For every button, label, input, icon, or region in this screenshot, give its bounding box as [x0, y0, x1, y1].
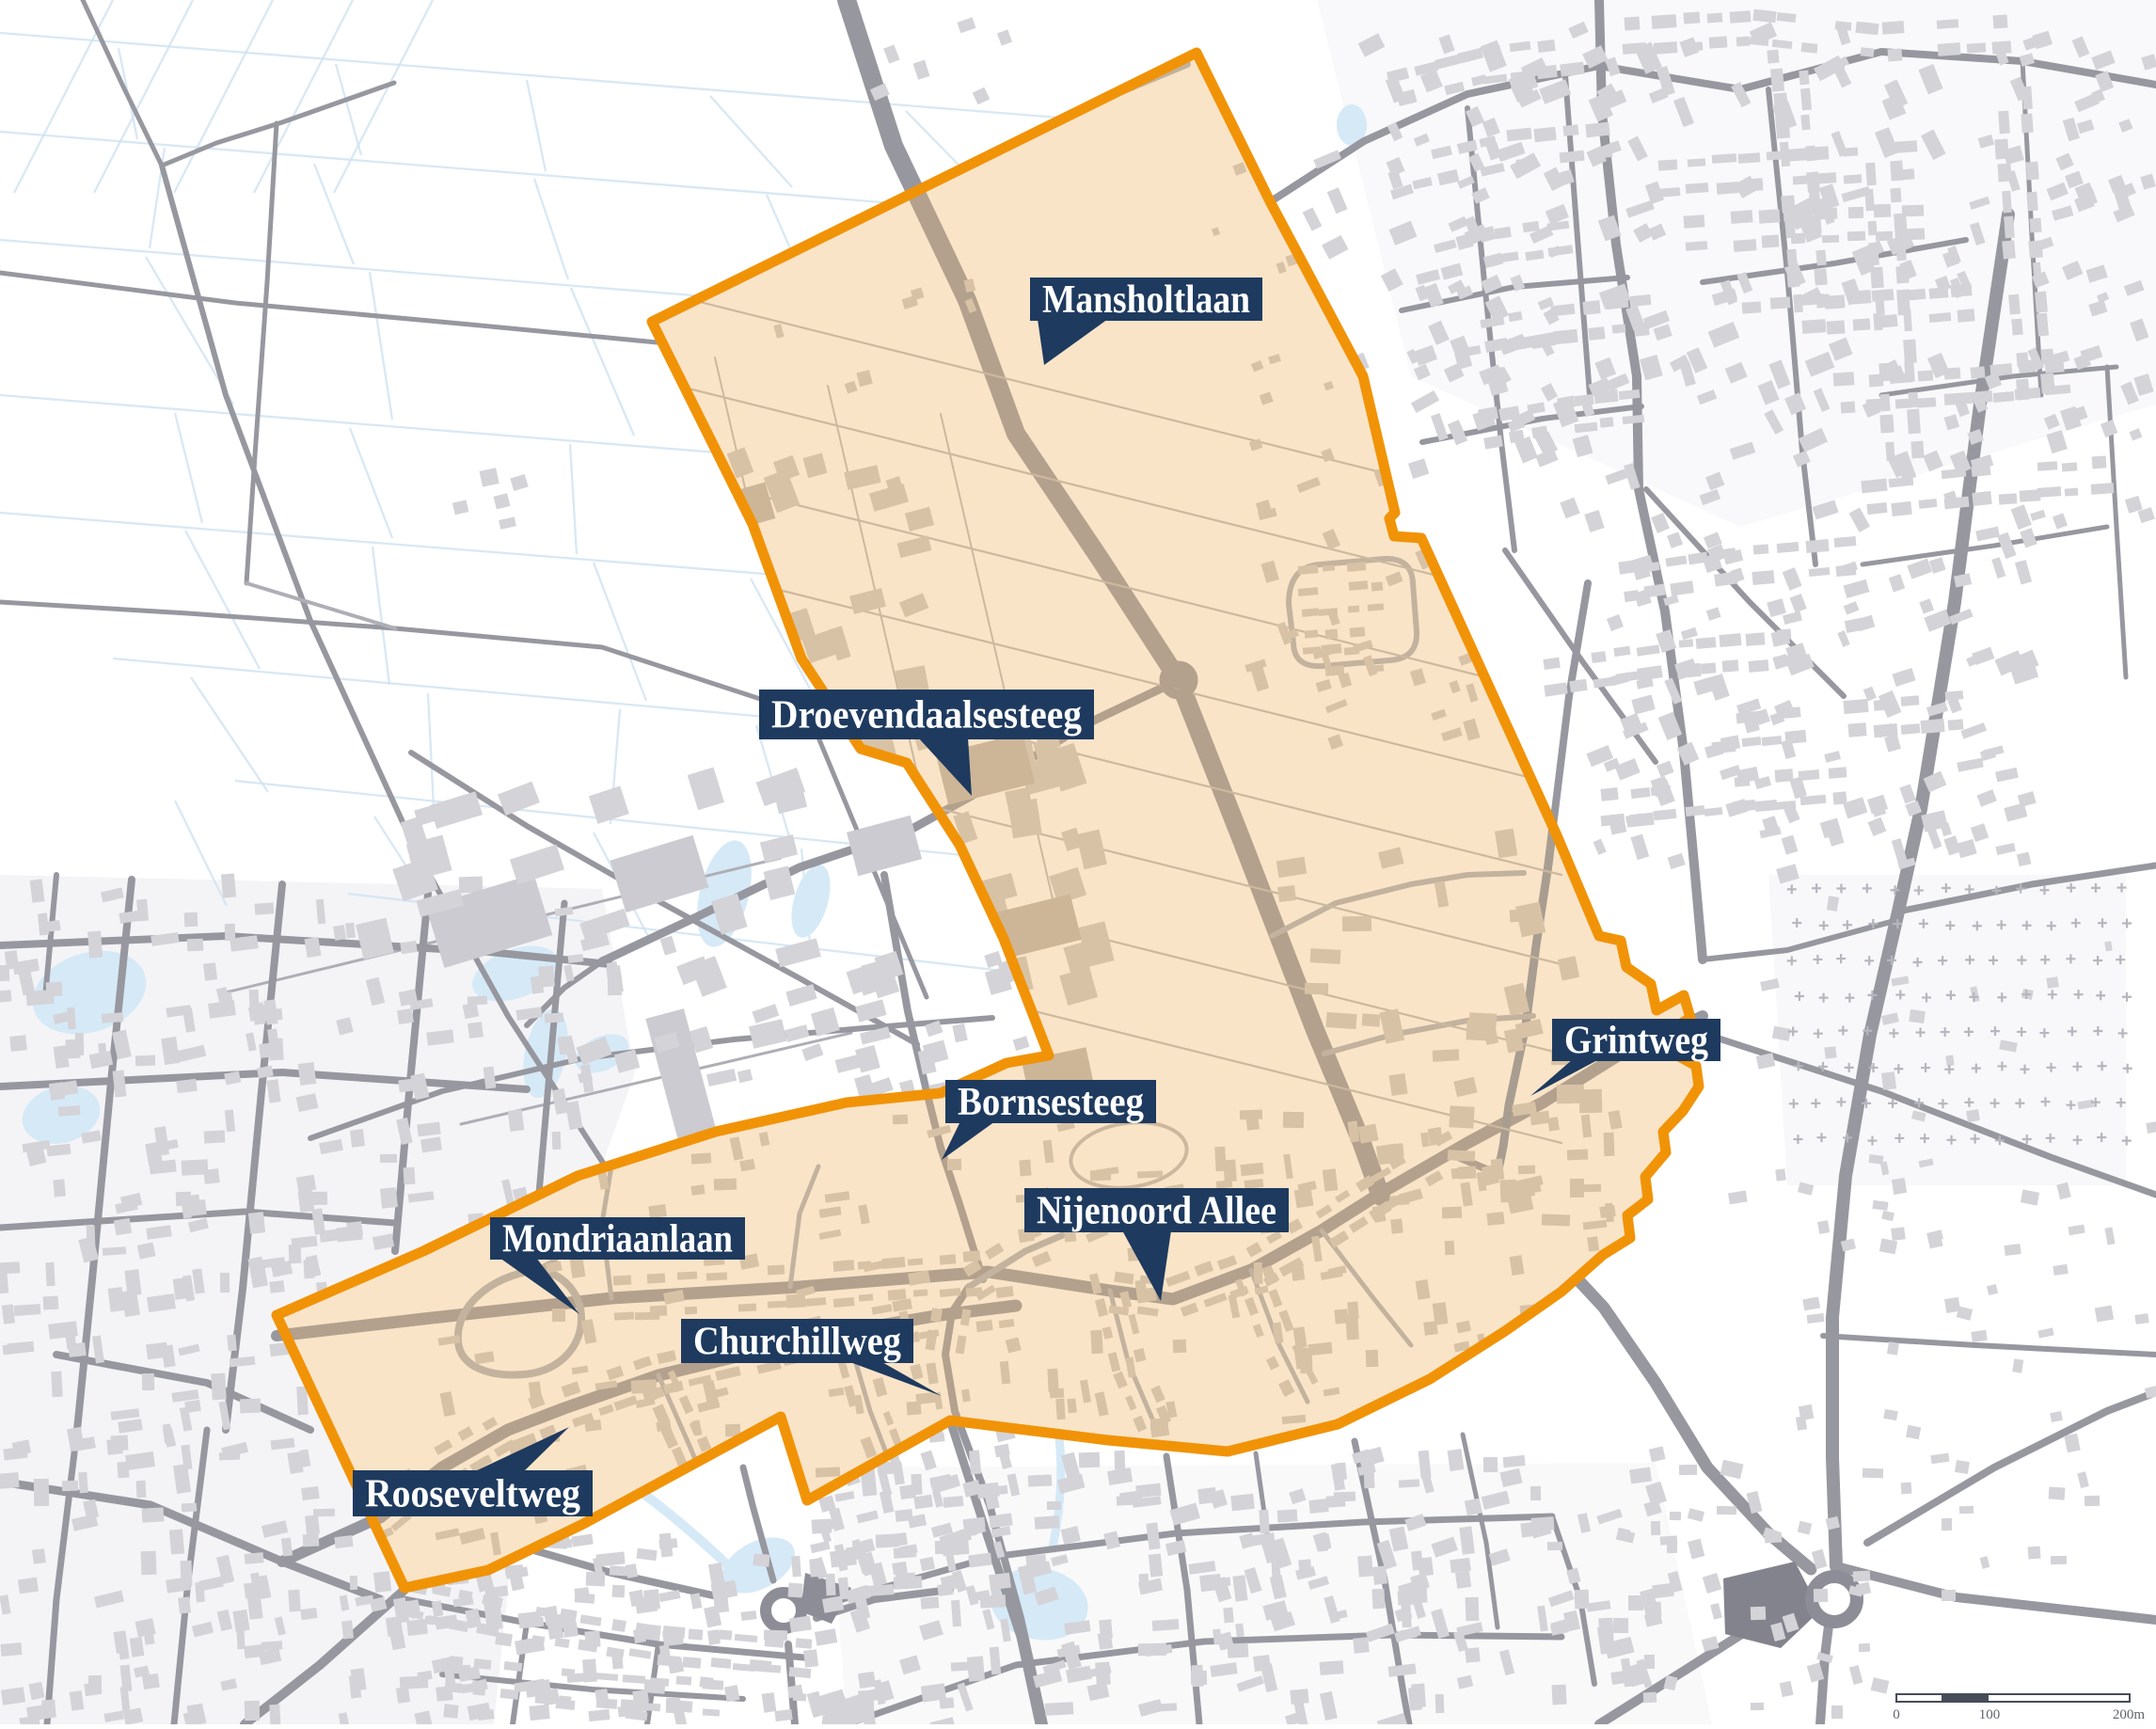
svg-text:0: 0	[1893, 1707, 1900, 1722]
svg-text:100: 100	[1979, 1707, 2001, 1722]
svg-text:Mansholtlaan: Mansholtlaan	[1042, 278, 1250, 322]
svg-text:Grintweg: Grintweg	[1564, 1020, 1708, 1063]
svg-text:Nijenoord Allee: Nijenoord Allee	[1037, 1190, 1276, 1233]
svg-text:200m: 200m	[2113, 1707, 2146, 1722]
svg-text:Mondriaanlaan: Mondriaanlaan	[502, 1218, 733, 1261]
svg-text:Churchillweg: Churchillweg	[693, 1321, 901, 1364]
svg-text:Bornsesteeg: Bornsesteeg	[958, 1081, 1144, 1124]
svg-text:Droevendaalsesteeg: Droevendaalsesteeg	[771, 694, 1082, 738]
svg-text:Rooseveltweg: Rooseveltweg	[365, 1473, 580, 1516]
